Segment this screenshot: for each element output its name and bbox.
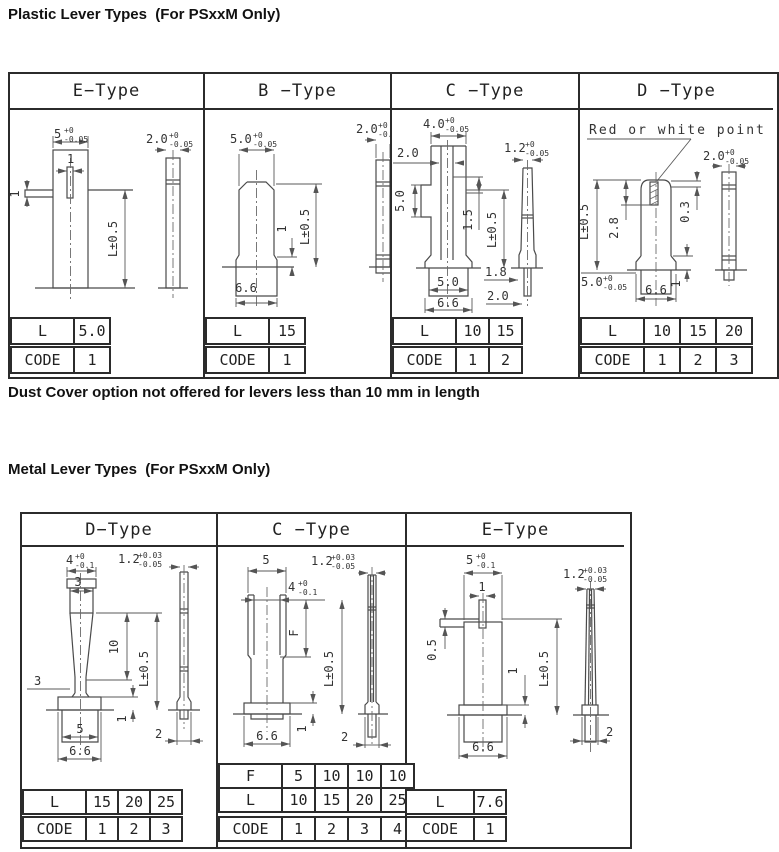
l-value-cell: 7.6 (473, 789, 507, 815)
dim-shank-width: 3 (34, 674, 41, 688)
dim-thickness-sup: +0 (525, 140, 535, 149)
dim-length: L±0.5 (137, 651, 151, 687)
dim-side-base: 2 (155, 727, 162, 741)
dim-lever-width-sub: -0.05 (445, 125, 469, 134)
metal-lever-table: D−Type C −Type E−Type (20, 512, 632, 849)
l-label-cell: L (580, 317, 645, 345)
l-value-cell: 15 (488, 317, 523, 345)
dim-length: L±0.5 (322, 651, 336, 687)
code-label-cell: CODE (580, 346, 645, 374)
l-value-cell: 20 (117, 789, 151, 815)
l-label-cell: L (392, 317, 457, 345)
dim-taper-length: 10 (107, 640, 121, 654)
dim-inner-slot: 2.0 (397, 146, 419, 160)
dim-lever-width: 4.0 (423, 117, 445, 131)
dim-mid: 1.5 (461, 209, 475, 231)
dim-tip-width-sub: -0.1 (75, 561, 94, 570)
dim-lever-width: 5 (466, 553, 473, 567)
metal-e-type-drawing: 5 +0 -0.1 1 0.5 1.2 +0.03 -0.05 L±0.5 1 … (407, 547, 626, 787)
plastic-b-type-drawing: 5.0 +0 -0.05 1 L±0.5 6.6 2.0 +0 -0.05 (204, 110, 390, 316)
dim-crown: 0.3 (678, 201, 692, 223)
dim-length: L±0.5 (106, 221, 120, 257)
dim-base-width: 6.6 (235, 281, 257, 295)
dim-lever-width-sub: -0.05 (64, 135, 88, 144)
code-label-cell: CODE (22, 816, 87, 842)
metal-e-code-row: CODE 1 (405, 816, 507, 842)
dim-base-width: 6.6 (256, 729, 278, 743)
dim-thickness: 1.2 (504, 141, 526, 155)
l-value-cell: 10 (643, 317, 681, 345)
l-value-cell: 20 (347, 787, 382, 813)
dim-lever-width-sup: +0 (476, 552, 486, 561)
dim-length: L±0.5 (485, 212, 499, 248)
metal-c-f-row: F 5 10 10 10 (218, 763, 415, 789)
plastic-b-type-header: B −Type (205, 74, 390, 110)
dim-base-width: 6.6 (69, 744, 91, 758)
plastic-section-title: Plastic Lever Types (For PSxxM Only) (8, 6, 280, 23)
dim-tip-inner: 3 (74, 575, 81, 589)
dim-lever-width: 5.0 (581, 275, 603, 289)
plastic-c-type-drawing: 4.0 +0 -0.05 2.0 5.0 1.5 L±0.5 1.8 2.0 5… (391, 110, 577, 316)
plastic-c-l-row: L 10 15 (392, 317, 523, 345)
dim-tip-width-sup: +0 (75, 552, 85, 561)
code-label-cell: CODE (218, 816, 283, 842)
l-value-cell: 15 (679, 317, 717, 345)
code-label-cell: CODE (10, 346, 75, 374)
dim-base-width: 6.6 (472, 740, 494, 754)
code-value-cell: 3 (715, 346, 753, 374)
code-value-cell: 1 (473, 816, 507, 842)
code-value-cell: 1 (281, 816, 316, 842)
code-value-cell: 3 (347, 816, 382, 842)
dim-lever-width: 5 (54, 127, 61, 141)
dim-step: 1 (295, 725, 309, 732)
dim-thickness-sub: -0.05 (583, 575, 607, 584)
dim-thickness: 1.2 (311, 554, 333, 568)
plastic-e-type-header: E−Type (10, 74, 203, 110)
plastic-b-l-row: L 15 (205, 317, 306, 345)
f-value-cell: 10 (314, 763, 349, 789)
dim-thickness: 2.0 (703, 149, 725, 163)
l-label-cell: L (205, 317, 270, 345)
dim-length: L±0.5 (298, 209, 312, 245)
l-value-cell: 10 (455, 317, 490, 345)
f-label-cell: F (218, 763, 283, 789)
dim-step: 1 (275, 225, 289, 232)
plastic-e-l-row: L 5.0 (10, 317, 111, 345)
dim-step: 1 (115, 715, 129, 722)
code-value-cell: 1 (455, 346, 490, 374)
dim-thickness-sub: -0.05 (525, 149, 549, 158)
l-value-cell: 25 (149, 789, 183, 815)
dim-thickness: 1.2 (563, 567, 585, 581)
plastic-lever-table: E−Type B −Type C −Type D −Type (8, 72, 779, 379)
metal-c-l-row: L 10 15 20 25 (218, 787, 415, 813)
plastic-d-l-row: L 10 15 20 (580, 317, 753, 345)
dim-lever-width-sup: +0 (445, 116, 455, 125)
metal-d-l-row: L 15 20 25 (22, 789, 183, 815)
plastic-d-type-header: D −Type (580, 74, 773, 110)
dust-cover-note: Dust Cover option not offered for levers… (8, 384, 480, 401)
dim-lever-width: 5.0 (230, 132, 252, 146)
l-label-cell: L (218, 787, 283, 813)
code-value-cell: 2 (488, 346, 523, 374)
dim-fork-width: 5 (262, 553, 269, 567)
plastic-b-code-row: CODE 1 (205, 346, 306, 374)
dim-thickness-sub: -0.05 (169, 140, 193, 149)
dim-lever-width-sup: +0 (603, 274, 613, 283)
dim-pin-width: 1 (478, 580, 485, 594)
dim-thickness-sup: +0.03 (331, 553, 355, 562)
metal-c-code-row: CODE 1 2 3 4 (218, 816, 415, 842)
dim-tip-width: 4 (66, 553, 73, 567)
code-label-cell: CODE (392, 346, 457, 374)
dim-lever-width-sup: +0 (253, 131, 263, 140)
metal-e-l-row: L 7.6 (405, 789, 507, 815)
metal-d-type-drawing: 4 +0 -0.1 3 1.2 +0.03 -0.05 10 L±0.5 3 1… (22, 547, 216, 787)
dim-lever-width-sub: -0.1 (476, 561, 495, 570)
l-value-cell: 15 (85, 789, 119, 815)
dim-inner-width-sub: -0.1 (298, 588, 317, 597)
f-value-cell: 10 (380, 763, 415, 789)
l-value-cell: 15 (314, 787, 349, 813)
code-value-cell: 2 (679, 346, 717, 374)
dim-base-width: 6.6 (645, 283, 667, 297)
dim-step: 1 (506, 667, 520, 674)
l-label-cell: L (22, 789, 87, 815)
dim-left-offset: 0.5 (425, 639, 439, 661)
code-value-cell: 1 (268, 346, 306, 374)
plastic-d-code-row: CODE 1 2 3 (580, 346, 753, 374)
dim-mark-depth: 2.8 (607, 217, 621, 239)
code-value-cell: 1 (643, 346, 681, 374)
dim-side-base: 2 (606, 725, 613, 739)
dim-base-inner: 5.0 (437, 275, 459, 289)
l-value-cell: 5.0 (73, 317, 111, 345)
dim-thickness: 1.2 (118, 552, 140, 566)
l-value-cell: 20 (715, 317, 753, 345)
dim-thickness-sub: -0.05 (378, 130, 390, 139)
dim-length: L±0.5 (579, 204, 591, 240)
metal-c-type-header: C −Type (218, 514, 405, 547)
plastic-c-code-row: CODE 1 2 (392, 346, 523, 374)
dim-thickness-sub: -0.05 (138, 560, 162, 569)
dim-thickness-sup: +0 (378, 121, 388, 130)
code-value-cell: 1 (73, 346, 111, 374)
dim-step: 1 (669, 280, 683, 287)
metal-section-title: Metal Lever Types (For PSxxM Only) (8, 461, 270, 478)
dim-thickness-sup: +0.03 (138, 551, 162, 560)
l-label-cell: L (10, 317, 75, 345)
dim-lever-width-sup: +0 (64, 126, 74, 135)
l-value-cell: 15 (268, 317, 306, 345)
dim-thickness-sub: -0.05 (331, 562, 355, 571)
plastic-e-code-row: CODE 1 (10, 346, 111, 374)
dim-side-base: 2 (341, 730, 348, 744)
code-value-cell: 1 (85, 816, 119, 842)
plastic-d-type-drawing: Red or white point 2.0 +0 -0.05 L±0.5 2.… (579, 110, 773, 316)
dim-thickness-sub: -0.05 (725, 157, 749, 166)
dim-base-inner: 5 (76, 722, 83, 736)
f-value-cell: 5 (281, 763, 316, 789)
dim-thickness-sup: +0 (725, 148, 735, 157)
metal-e-type-header: E−Type (407, 514, 624, 547)
dim-inner-width-sup: +0 (298, 579, 308, 588)
plastic-c-type-header: C −Type (392, 74, 578, 110)
red-white-point-callout: Red or white point (589, 123, 766, 138)
dim-thickness: 2.0 (146, 132, 168, 146)
datasheet-page: Plastic Lever Types (For PSxxM Only) E−T… (0, 0, 779, 852)
dim-tab-height: 5.0 (393, 190, 407, 212)
dim-thickness-sup: +0.03 (583, 566, 607, 575)
metal-c-type-drawing: 5 1.2 +0.03 -0.05 4 +0 -0.1 F L±0.5 1 6.… (218, 547, 405, 762)
dim-base-thickness: 2.0 (487, 289, 509, 303)
dim-thickness-sup: +0 (169, 131, 179, 140)
code-label-cell: CODE (205, 346, 270, 374)
dim-tip-thickness: 1.8 (485, 265, 507, 279)
code-value-cell: 3 (149, 816, 183, 842)
dim-length: L±0.5 (537, 651, 551, 687)
l-value-cell: 10 (281, 787, 316, 813)
code-label-cell: CODE (405, 816, 475, 842)
dim-lever-width-sub: -0.05 (253, 140, 277, 149)
dim-tab-height: 1 (10, 190, 22, 197)
dim-fork-depth: F (287, 629, 301, 636)
dim-slot-width: 1 (67, 152, 74, 166)
metal-d-code-row: CODE 1 2 3 (22, 816, 183, 842)
dim-lever-width-sub: -0.05 (603, 283, 627, 292)
l-label-cell: L (405, 789, 475, 815)
dim-thickness: 2.0 (356, 122, 378, 136)
dim-inner-width: 4 (288, 580, 295, 594)
dim-base-width: 6.6 (437, 296, 459, 310)
code-value-cell: 2 (117, 816, 151, 842)
plastic-e-type-drawing: 5 +0 -0.05 1 1 L±0.5 2.0 +0 -0.05 (10, 110, 203, 316)
f-value-cell: 10 (347, 763, 382, 789)
metal-d-type-header: D−Type (22, 514, 216, 547)
code-value-cell: 2 (314, 816, 349, 842)
